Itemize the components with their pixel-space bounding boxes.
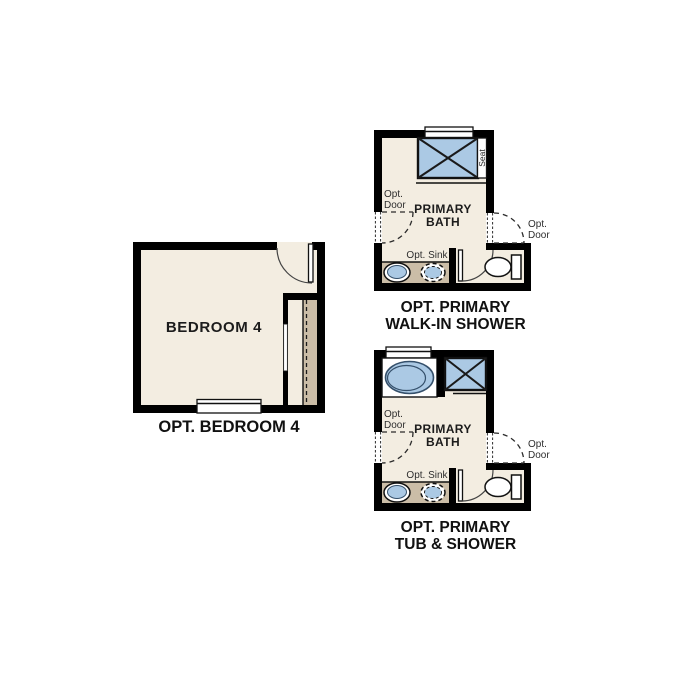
tub-shower-floorplan: Opt. Door PRIMARY BATH Opt. Door Opt. Si… <box>366 340 552 520</box>
walkin-right-opt-door-label-1: Opt. <box>528 219 547 230</box>
walkin-shower-floorplan: Seat Opt. Door PRIMARY BATH Opt. Door Op… <box>366 120 552 298</box>
tub-right-opt-door-label-1: Opt. <box>528 439 547 450</box>
tub-room-label-1: PRIMARY <box>414 422 472 436</box>
walkin-caption-line1: OPT. PRIMARY <box>363 299 548 316</box>
bedroom-caption: OPT. BEDROOM 4 <box>129 419 329 436</box>
tub-bath-shower-icon <box>445 358 486 394</box>
shower-seat-label: Seat <box>477 149 487 167</box>
tub-opt-sink-icon <box>421 484 445 502</box>
walkin-toilet-icon <box>485 255 521 279</box>
walkin-caption: OPT. PRIMARY WALK-IN SHOWER <box>363 299 548 333</box>
tub-shower-caption-line1: OPT. PRIMARY <box>363 519 548 536</box>
tub-right-opt-door-label-2: Door <box>528 450 550 461</box>
tub-window-icon <box>386 347 431 358</box>
bedroom-floorplan: BEDROOM 4 <box>125 235 335 425</box>
walkin-right-opt-door-label-2: Door <box>528 230 550 241</box>
tub-left-opt-door-label-2: Door <box>384 420 406 431</box>
tub-room-label-2: BATH <box>426 435 460 449</box>
bedroom-room-label: BEDROOM 4 <box>166 319 262 336</box>
tub-shower-caption-line2: TUB & SHOWER <box>363 536 548 553</box>
walkin-sink-icon <box>384 263 410 282</box>
walkin-room-label-1: PRIMARY <box>414 202 472 216</box>
walkin-opt-sink-label: Opt. Sink <box>406 250 448 261</box>
walkin-left-opt-door-label-2: Door <box>384 200 406 211</box>
tub-shower-caption: OPT. PRIMARY TUB & SHOWER <box>363 519 548 553</box>
walkin-room-label-2: BATH <box>426 215 460 229</box>
tub-right-opt-door-icon <box>486 433 524 463</box>
tub-sink-icon <box>384 483 410 502</box>
floorplan-canvas: BEDROOM 4 OPT. BEDROOM 4 Seat <box>0 0 687 687</box>
tub-left-opt-door-label-1: Opt. <box>384 409 403 420</box>
walkin-right-opt-door-icon <box>486 213 524 243</box>
walkin-left-opt-door-label-1: Opt. <box>384 189 403 200</box>
walkin-window-icon <box>425 127 473 138</box>
tub-opt-sink-label: Opt. Sink <box>406 470 448 481</box>
tub-toilet-icon <box>485 475 521 499</box>
walkin-caption-line2: WALK-IN SHOWER <box>363 316 548 333</box>
walkin-opt-sink-icon <box>421 264 445 282</box>
walkin-shower-icon <box>416 138 487 183</box>
bedroom-window-icon <box>197 400 261 414</box>
